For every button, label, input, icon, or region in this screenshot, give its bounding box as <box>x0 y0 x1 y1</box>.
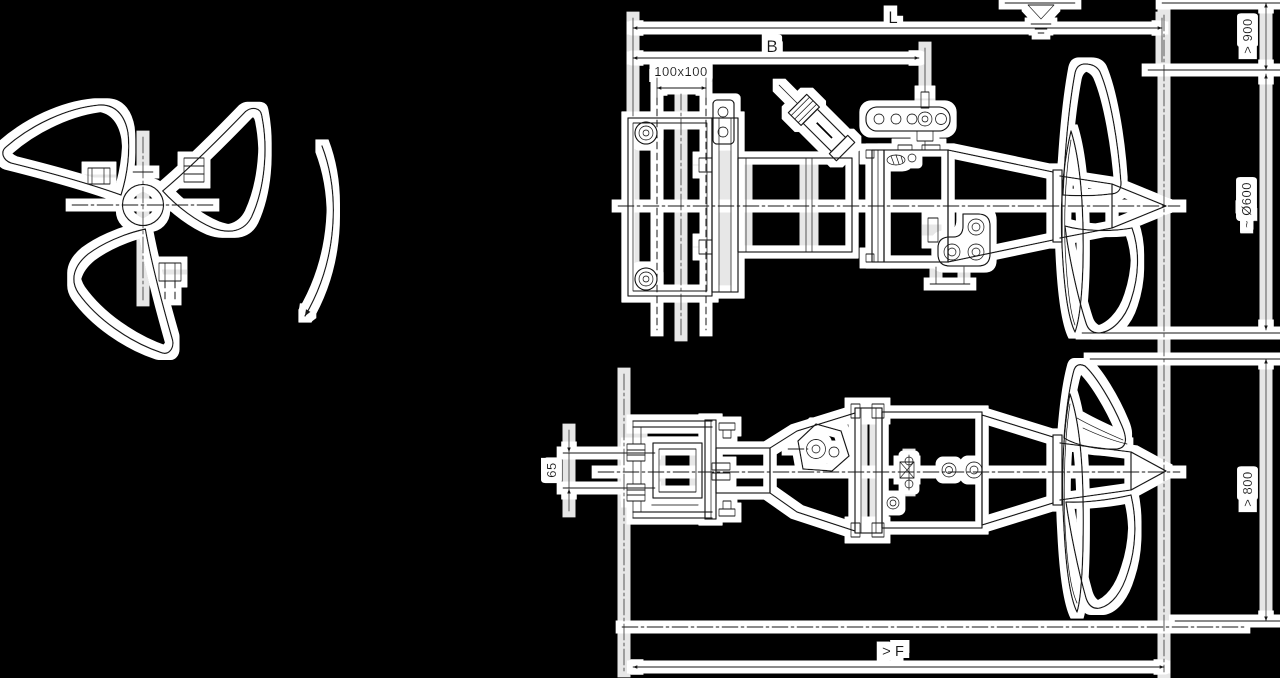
dim-label-B: B <box>766 37 777 56</box>
dim-label-clearance: > 800 <box>1240 471 1255 506</box>
dim-label-guide-bar: 100x100 <box>654 64 707 79</box>
clamp-flange-plan <box>851 404 884 537</box>
dimension-guide-bar <box>657 78 706 98</box>
cable-entry-gland <box>770 76 855 161</box>
dim-label-L: L <box>888 8 897 27</box>
guide-bracket-plan <box>627 420 735 519</box>
technical-drawing-canvas: L B 100x100 > 900 ~ Ø600 <box>0 0 1280 678</box>
propeller-front-view <box>3 89 333 377</box>
propeller-blades <box>3 89 300 377</box>
dimension-L <box>633 18 1162 116</box>
guide-bar-section <box>653 443 702 498</box>
mixer-plan-view: 65 > 800 > F <box>544 359 1280 673</box>
dimension-submergence <box>1148 3 1280 70</box>
bracket-arm-plan <box>712 448 770 493</box>
dim-label-submergence: > 900 <box>1240 18 1255 53</box>
rotation-direction-arrow <box>305 146 333 316</box>
cable-gland-cover-plan <box>798 424 849 471</box>
gearbox-housing <box>866 145 948 262</box>
dim-label-floor-distance: > F <box>882 643 904 660</box>
water-level-icon <box>1005 3 1075 33</box>
motor-housing <box>738 158 852 252</box>
guide-bar-hidden-lines <box>657 94 706 336</box>
dim-label-offset: 65 <box>544 462 559 477</box>
propeller-side-profile <box>1060 64 1166 333</box>
mixer-side-view: L B 100x100 > 900 ~ Ø600 <box>618 3 1280 672</box>
gearbox-plan <box>882 412 982 528</box>
dim-label-propeller-diameter: ~ Ø600 <box>1239 182 1254 228</box>
propeller-plan-profile <box>1060 365 1166 612</box>
blade-root-clamps <box>88 158 204 299</box>
lifting-bracket <box>866 48 950 150</box>
cone-housing-plan <box>982 415 1062 525</box>
lower-bolt-bracket <box>928 214 990 284</box>
